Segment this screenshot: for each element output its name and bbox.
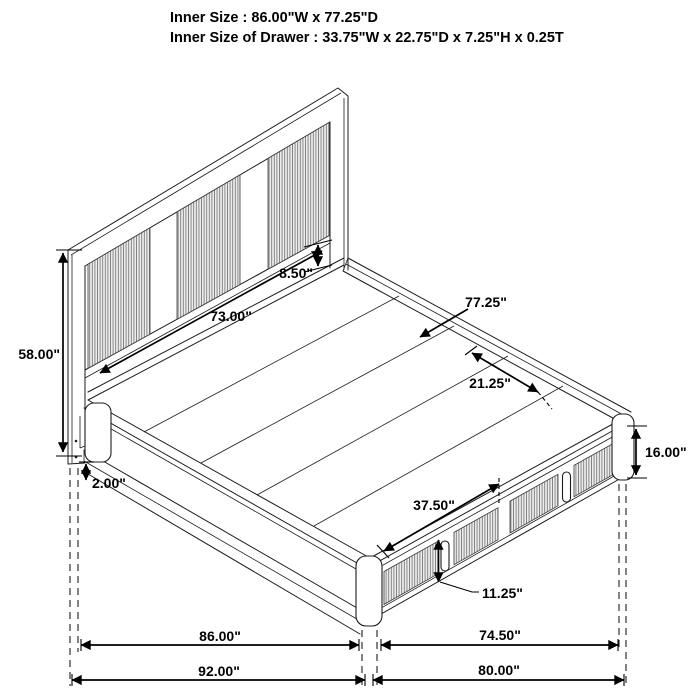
drawer2-ribs-right bbox=[574, 443, 614, 497]
label-74-50in: 74.50" bbox=[479, 627, 521, 643]
isometric-bed-drawing: Inner Size : 86.00"W x 77.25"D Inner Siz… bbox=[0, 0, 700, 700]
left-rim-bevel bbox=[85, 414, 363, 573]
drawer2-handle-slot bbox=[563, 472, 571, 502]
deck-board-seam-2 bbox=[201, 326, 454, 463]
dimension-overall-width: 92.00" bbox=[72, 663, 365, 686]
dimension-frame-height: 16.00" bbox=[627, 426, 687, 478]
drawer1-ribs-right bbox=[454, 508, 498, 565]
corner-posts bbox=[85, 403, 634, 626]
drawer1-ribs-left bbox=[384, 541, 438, 604]
title-inner-size: Inner Size : 86.00"W x 77.25"D bbox=[170, 10, 378, 26]
headboard-slat-panel-right bbox=[268, 123, 329, 270]
dimension-platform-depth: 77.25" bbox=[420, 294, 507, 337]
front-rim-outer bbox=[367, 425, 623, 568]
label-16in: 16.00" bbox=[645, 444, 687, 460]
dimension-overall-depth: 80.00" bbox=[373, 662, 624, 686]
label-2in: 2.00" bbox=[92, 475, 126, 491]
headboard-left-post-bottom bbox=[68, 463, 85, 464]
bed-dimension-diagram: Inner Size : 86.00"W x 77.25"D Inner Siz… bbox=[0, 0, 700, 700]
dimension-base-clearance: 2.00" bbox=[79, 462, 126, 491]
label-21-25in: 21.25" bbox=[469, 375, 511, 391]
front-rim-bevel bbox=[367, 431, 623, 574]
left-rim-outer bbox=[84, 408, 364, 567]
label-77-25in: 77.25" bbox=[465, 294, 507, 310]
label-11-25in: 11.25" bbox=[482, 585, 523, 601]
label-80in: 80.00" bbox=[478, 662, 520, 678]
figure-title: Inner Size : 86.00"W x 77.25"D Inner Siz… bbox=[170, 10, 564, 46]
dimension-footboard-inner-width: 74.50" bbox=[381, 627, 618, 651]
drawer2-ribs-left bbox=[510, 474, 558, 533]
corner-post-west bbox=[85, 403, 111, 462]
label-8-50in: 8.50" bbox=[279, 265, 313, 281]
left-plinth-bottom bbox=[88, 474, 360, 634]
post-pin-top bbox=[75, 440, 78, 443]
dimension-inner-width: 86.00" bbox=[81, 628, 359, 651]
label-86in: 86.00" bbox=[199, 628, 241, 644]
label-58in: 58.00" bbox=[18, 346, 60, 362]
label-37-50in: 37.50" bbox=[413, 497, 455, 513]
corner-post-south bbox=[356, 556, 382, 626]
rail-bracket-bottom bbox=[80, 446, 85, 448]
drawer1-handle-slot bbox=[441, 541, 449, 571]
label-92in: 92.00" bbox=[198, 663, 240, 679]
corner-post-east bbox=[612, 414, 634, 480]
dimension-headboard-height: 58.00" bbox=[18, 250, 82, 456]
title-drawer-size: Inner Size of Drawer : 33.75"W x 22.75"D… bbox=[170, 30, 564, 46]
label-73in: 73.00" bbox=[210, 308, 252, 324]
side-rail-mid bbox=[346, 264, 627, 417]
